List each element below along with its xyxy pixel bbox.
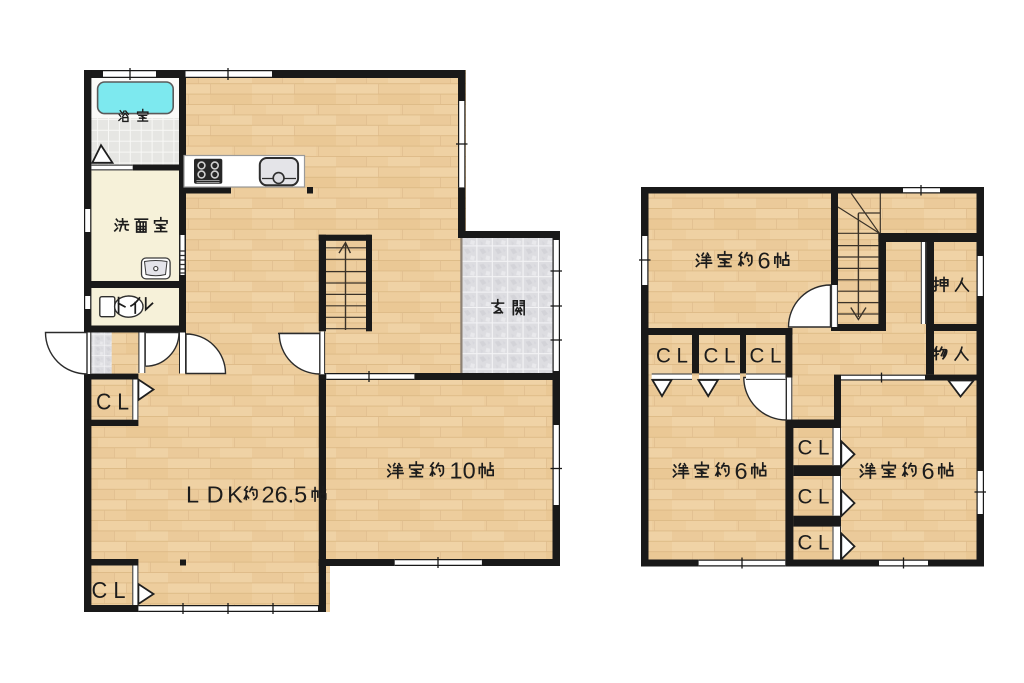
svg-text:6: 6 [758, 247, 771, 273]
svg-text:C L: C L [798, 486, 830, 509]
svg-text:C L: C L [798, 532, 830, 555]
svg-text:K: K [227, 481, 243, 507]
svg-text:C L: C L [798, 437, 830, 460]
svg-text:C L: C L [750, 345, 782, 368]
svg-text:D: D [207, 481, 224, 507]
svg-text:10: 10 [450, 458, 476, 484]
svg-text:C L: C L [92, 577, 126, 603]
svg-text:6: 6 [735, 458, 748, 484]
svg-text:C L: C L [96, 389, 129, 415]
svg-text:C L: C L [704, 345, 736, 368]
svg-text:26.5: 26.5 [262, 481, 308, 507]
svg-text:C L: C L [656, 345, 688, 368]
svg-text:L: L [186, 481, 199, 507]
svg-text:6: 6 [922, 458, 935, 484]
